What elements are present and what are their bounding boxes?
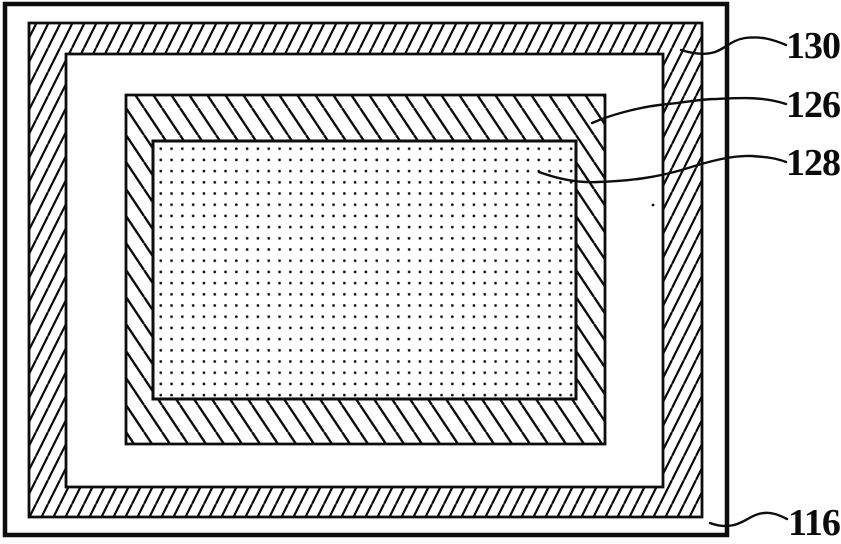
- callout-label-126: 126: [786, 84, 840, 126]
- patent-figure: 130 126 128 116: [0, 0, 841, 544]
- callout-label-116: 116: [788, 502, 840, 544]
- callout-label-130: 130: [786, 25, 840, 67]
- patent-figure-canvas: 130 126 128 116: [0, 0, 841, 544]
- callout-label-128: 128: [786, 142, 840, 184]
- stippled-region: [153, 141, 576, 399]
- scan-speck: [652, 204, 655, 207]
